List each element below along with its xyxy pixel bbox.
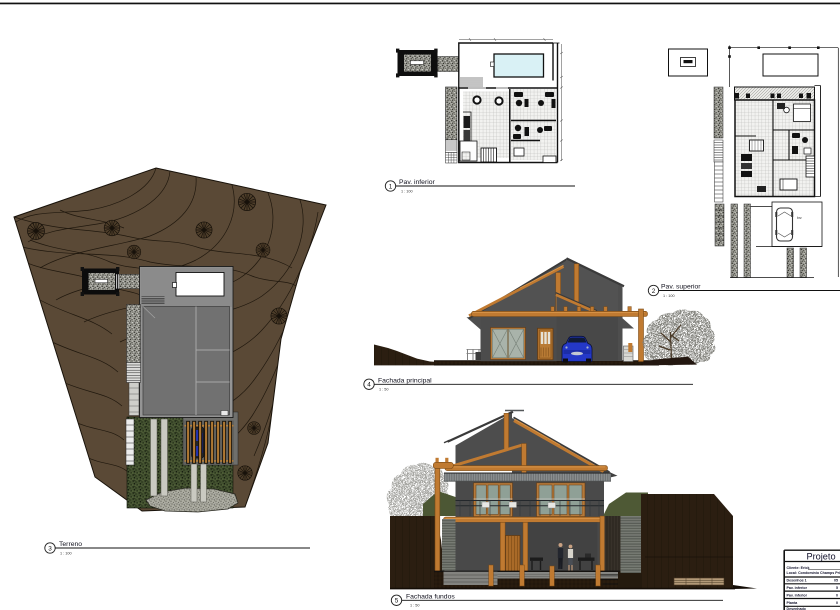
svg-text:1 : 100: 1 : 100 [663,294,675,298]
svg-text:2: 2 [652,288,656,295]
svg-text:brz: brz [797,216,802,220]
svg-text:5: 5 [395,598,399,605]
svg-text:1 : 100: 1 : 100 [401,190,413,194]
svg-text:Pav. inferior: Pav. inferior [399,179,435,186]
svg-text:0: 0 [836,593,838,597]
svg-text:Pav. inferior: Pav. inferior [787,593,808,597]
svg-text:Terreno: Terreno [59,541,82,548]
svg-text:Planta: Planta [787,601,799,605]
svg-text:Desenhos 1: Desenhos 1 [787,579,807,583]
svg-text:Fachada principal: Fachada principal [378,377,432,384]
svg-text:Projeto: Projeto [806,551,835,561]
svg-text:3: 3 [48,545,52,552]
svg-text:Cliente: Erick: Cliente: Erick [787,566,810,570]
svg-text:0: 0 [836,601,838,605]
svg-text:5: 5 [836,586,838,590]
svg-text:1 : 100: 1 : 100 [60,552,72,556]
svg-text:1 : 50: 1 : 50 [379,388,389,392]
svg-text:1: 1 [389,183,393,190]
svg-text:Pav. superior: Pav. superior [661,284,701,291]
svg-text:4: 4 [367,382,371,389]
svg-text:Pav. inferior: Pav. inferior [787,586,808,590]
svg-text:1 : 50: 1 : 50 [410,604,420,608]
svg-text:Fachada fundos: Fachada fundos [406,593,455,600]
svg-text:05: 05 [834,579,838,583]
svg-text:Local: Condomínio Champs Priv: Local: Condomínio Champs Privê [787,571,840,575]
